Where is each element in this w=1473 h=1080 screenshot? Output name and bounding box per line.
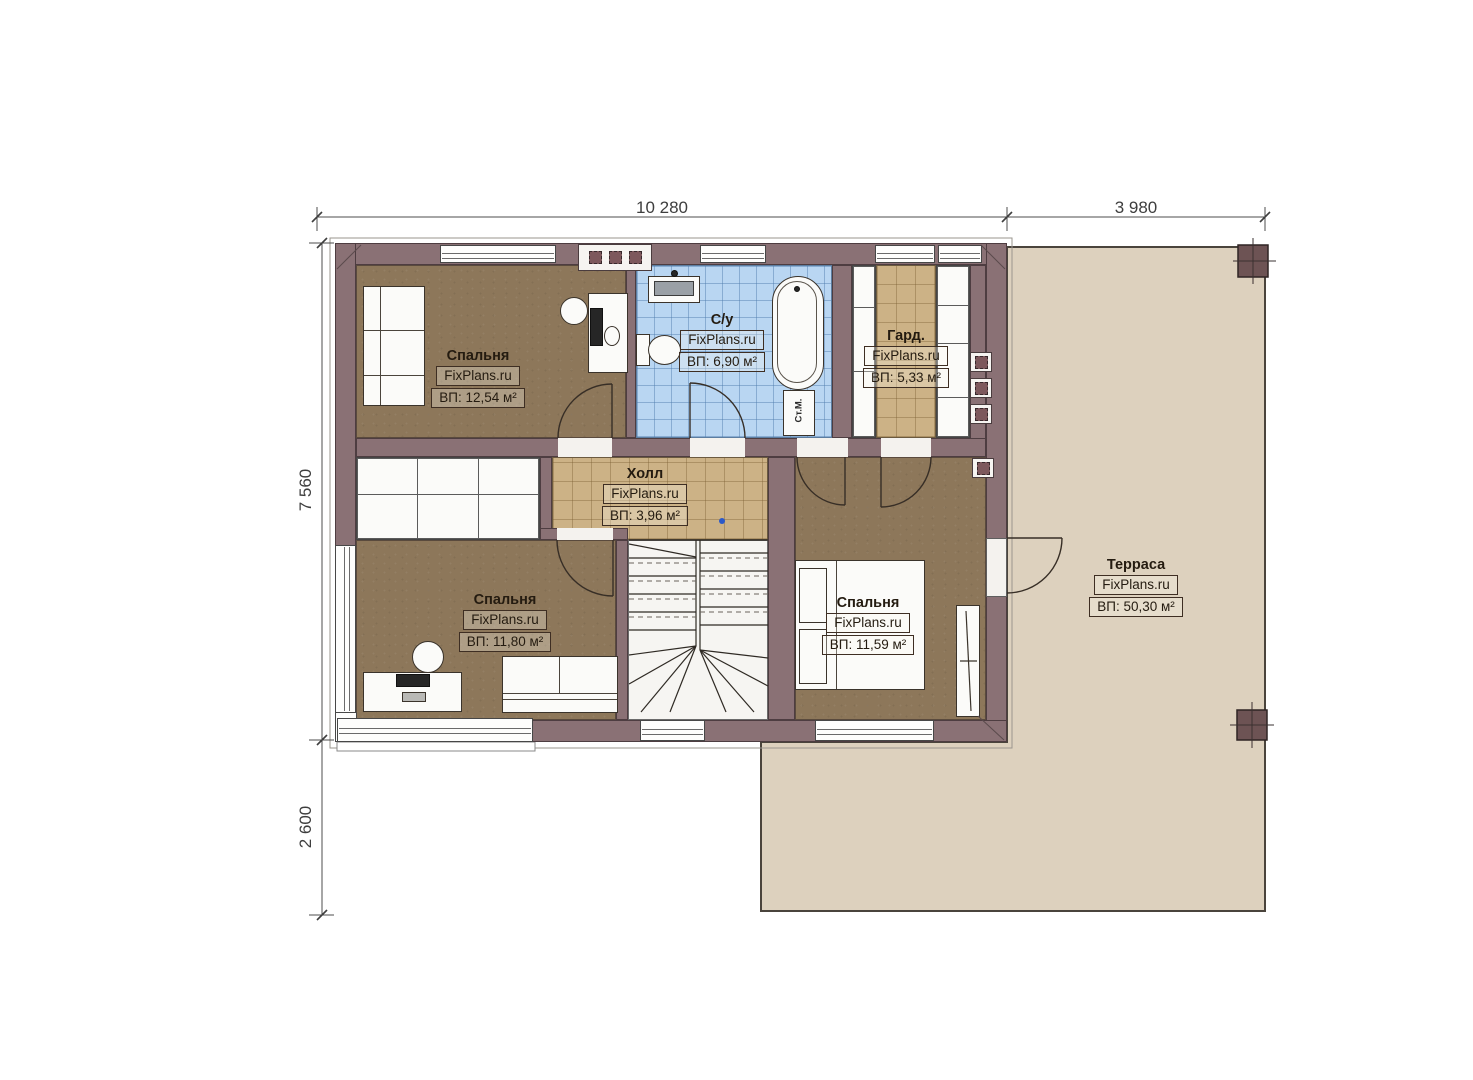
washing-machine: Ст.М. — [783, 390, 815, 436]
watermark: FixPlans.ru — [1094, 575, 1178, 595]
sofa — [502, 656, 618, 713]
room-label-wardrobe: Гард. FixPlans.ru ВП: 5,33 м² — [848, 328, 964, 388]
room-area: ВП: 50,30 м² — [1089, 597, 1183, 617]
exterior-ledge — [337, 742, 535, 751]
room-area: ВП: 5,33 м² — [863, 368, 949, 388]
floor-plan-canvas: Ст.М. — [0, 0, 1473, 1080]
bedroom-3-door-opening — [797, 438, 848, 457]
window — [440, 245, 556, 263]
keyboard-icon — [402, 692, 426, 702]
vent-shaft-icon — [972, 458, 994, 478]
terrace-door-opening — [986, 538, 1007, 597]
room-name: Гард. — [887, 328, 925, 344]
drain-icon — [794, 286, 800, 292]
vent-flue-icon — [609, 251, 622, 264]
room-area: ВП: 6,90 м² — [679, 352, 765, 372]
bedroom-2-door-opening — [557, 528, 613, 540]
room-area: ВП: 12,54 м² — [431, 388, 525, 408]
bedroom-2-closet — [356, 457, 540, 540]
room-label-bathroom: С/у FixPlans.ru ВП: 6,90 м² — [663, 312, 781, 372]
room-label-terrace: Терраса FixPlans.ru ВП: 50,30 м² — [1069, 557, 1203, 617]
room-area: ВП: 11,80 м² — [459, 632, 552, 652]
room-name: Спальня — [474, 592, 537, 608]
terrace-column — [1238, 245, 1268, 277]
faucet-icon — [671, 270, 678, 277]
vent-flue-icon — [589, 251, 602, 264]
window — [335, 545, 356, 713]
wardrobe-door-opening — [881, 438, 931, 457]
window — [640, 720, 705, 741]
mouse-icon — [604, 326, 620, 346]
wall-east — [986, 243, 1007, 742]
window — [875, 245, 935, 263]
room-area: ВП: 11,59 м² — [822, 635, 915, 655]
radiator-window — [956, 605, 980, 717]
vent-flue-icon — [629, 251, 642, 264]
panoramic-window — [337, 718, 533, 742]
watermark: FixPlans.ru — [463, 610, 547, 630]
bedroom-1-door-opening — [558, 438, 612, 457]
bathroom-door-opening — [690, 438, 745, 457]
chimney-vent-block — [578, 244, 652, 271]
room-name: Холл — [627, 466, 663, 482]
window — [815, 720, 934, 741]
office-chair — [560, 297, 588, 325]
room-label-bedroom-2: Спальня FixPlans.ru ВП: 11,80 м² — [438, 592, 572, 652]
watermark: FixPlans.ru — [436, 366, 520, 386]
watermark: FixPlans.ru — [680, 330, 764, 350]
room-name: Спальня — [837, 595, 900, 611]
vent-shaft-icon — [970, 378, 992, 398]
watermark: FixPlans.ru — [826, 613, 910, 633]
sink — [648, 276, 700, 303]
watermark: FixPlans.ru — [603, 484, 687, 504]
vent-shaft-icon — [970, 404, 992, 424]
room-label-bedroom-1: Спальня FixPlans.ru ВП: 12,54 м² — [408, 348, 548, 408]
room-label-bedroom-3: Спальня FixPlans.ru ВП: 11,59 м² — [801, 595, 935, 655]
dimension-label-depth-main: 7 560 — [296, 450, 316, 530]
dimension-label-depth-terrace: 2 600 — [296, 787, 316, 867]
room-area: ВП: 3,96 м² — [602, 506, 688, 526]
dimension-label-width-terrace: 3 980 — [1096, 198, 1176, 218]
window — [700, 245, 766, 263]
room-label-hall: Холл FixPlans.ru ВП: 3,96 м² — [588, 466, 702, 526]
washing-machine-label: Ст.М. — [794, 388, 805, 434]
computer-monitor-icon — [590, 308, 603, 346]
terrace-column — [1237, 710, 1267, 740]
wall-stairs-bedroom3 — [768, 457, 795, 720]
window — [938, 245, 982, 263]
room-name: Спальня — [447, 348, 510, 364]
watermark: FixPlans.ru — [864, 346, 948, 366]
stairwell-floor — [628, 540, 768, 720]
column-axis-marks — [1230, 238, 1276, 748]
computer-monitor-icon — [396, 674, 430, 687]
dimension-label-width-main: 10 280 — [622, 198, 702, 218]
vent-shaft-icon — [970, 352, 992, 372]
room-name: С/у — [711, 312, 734, 328]
room-name: Терраса — [1107, 557, 1165, 573]
